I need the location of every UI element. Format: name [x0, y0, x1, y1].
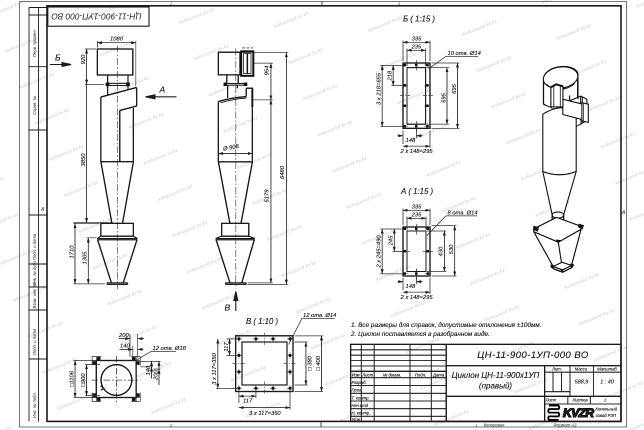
svg-text:В ( 1:10 ): В ( 1:10 )	[246, 317, 278, 326]
svg-text:200: 200	[118, 333, 129, 339]
svg-text:140: 140	[120, 344, 130, 350]
svg-text:Масса: Масса	[575, 367, 588, 372]
svg-text:1. Все размеры для справок, до: 1. Все размеры для справок, допустимые о…	[351, 321, 542, 329]
svg-text:А: А	[40, 207, 45, 213]
svg-text:ЦН-11-900-1УП-000 ВО: ЦН-11-900-1УП-000 ВО	[51, 12, 142, 22]
svg-text:2. Циклон поставляется в разоб: 2. Циклон поставляется в разобранном вид…	[350, 330, 490, 338]
svg-text:Нач.отд: Нач.отд	[352, 403, 369, 408]
svg-text:Подп. и дата: Подп. и дата	[32, 233, 37, 260]
svg-text:8 отв. Ø14: 8 отв. Ø14	[448, 210, 478, 216]
svg-text:200: 200	[154, 370, 160, 381]
svg-text:3 х 117=350: 3 х 117=350	[249, 411, 281, 417]
svg-text:Циклон ЦН-11-900х1УП: Циклон ЦН-11-900х1УП	[452, 371, 540, 380]
svg-text:1: 1	[398, 1, 400, 6]
svg-text:□ 380: □ 380	[308, 355, 314, 371]
svg-text:1710: 1710	[69, 245, 75, 259]
svg-text:Перв. примен.: Перв. примен.	[32, 29, 37, 57]
svg-text:218: 218	[388, 70, 394, 81]
svg-text:588,9: 588,9	[575, 380, 589, 386]
svg-text:Т. контр.: Т. контр.	[352, 395, 370, 400]
svg-text:А ( 1:15 ): А ( 1:15 )	[400, 187, 433, 196]
svg-text:□ 400: □ 400	[316, 355, 322, 371]
svg-text:245: 245	[389, 235, 395, 246]
svg-text:1: 1	[475, 423, 477, 428]
svg-text:6480: 6480	[280, 165, 286, 179]
svg-text:А: А	[159, 85, 166, 95]
svg-text:235: 235	[410, 45, 421, 51]
svg-text:117: 117	[243, 399, 253, 405]
svg-text:Справ. №: Справ. №	[32, 96, 37, 115]
svg-text:1 : 40: 1 : 40	[600, 380, 614, 386]
svg-text:Листов: Листов	[571, 398, 588, 403]
svg-text:Лист: Лист	[361, 373, 373, 378]
svg-text:117: 117	[224, 342, 230, 352]
svg-text:Копельный: Копельный	[596, 407, 618, 412]
svg-text:235: 235	[411, 213, 422, 219]
svg-text:Б ( 1:15 ): Б ( 1:15 )	[403, 15, 435, 24]
svg-text:□900: □900	[81, 373, 87, 387]
svg-text:335: 335	[412, 205, 422, 211]
svg-text:Н. контр.: Н. контр.	[352, 411, 371, 416]
svg-text:148: 148	[406, 138, 416, 144]
svg-text:920: 920	[81, 54, 87, 64]
svg-text:430: 430	[439, 246, 445, 256]
svg-text:5179: 5179	[265, 189, 271, 203]
svg-text:Подп.: Подп.	[415, 373, 426, 378]
svg-text:KVZR: KVZR	[563, 406, 594, 420]
svg-text:Разраб.: Разраб.	[352, 380, 367, 385]
svg-text:Масштаб: Масштаб	[597, 367, 617, 372]
svg-text:Пров.: Пров.	[352, 388, 363, 393]
svg-text:Утв.: Утв.	[352, 417, 362, 422]
svg-text:1080: 1080	[110, 37, 124, 43]
svg-text:Лист: Лист	[545, 398, 557, 403]
svg-text:3 х 218=655: 3 х 218=655	[377, 72, 383, 105]
svg-text:695: 695	[452, 83, 458, 93]
svg-text:10 отв. Ø14: 10 отв. Ø14	[448, 51, 481, 57]
svg-text:Изм: Изм	[352, 373, 360, 378]
svg-text:2 х 148=295: 2 х 148=295	[400, 295, 434, 301]
svg-text:530: 530	[449, 244, 455, 254]
svg-text:В: В	[225, 303, 231, 313]
svg-text:954: 954	[265, 66, 271, 76]
svg-text:Инв. № дубл.: Инв. № дубл.	[32, 260, 37, 286]
svg-text:Взам. инв. №: Взам. инв. №	[32, 282, 37, 308]
svg-text:148: 148	[406, 284, 416, 290]
svg-text:Копировал: Копировал	[484, 423, 505, 428]
svg-text:Инв. № подл.: Инв. № подл.	[32, 392, 37, 418]
svg-text:(правый): (правый)	[479, 382, 512, 391]
svg-text:Дата: Дата	[432, 373, 445, 378]
svg-text:12 отв. Ø18: 12 отв. Ø18	[153, 346, 187, 352]
svg-text:140: 140	[146, 365, 152, 375]
svg-text:3 х 117=350: 3 х 117=350	[212, 352, 218, 384]
svg-text:2 х 245=490: 2 х 245=490	[377, 235, 383, 269]
svg-text:Лит.: Лит.	[551, 367, 562, 372]
svg-text:А: А	[621, 210, 626, 216]
svg-text:Б: Б	[55, 53, 61, 63]
svg-text:595: 595	[441, 92, 447, 102]
svg-text:№ докум.: № докум.	[383, 373, 401, 378]
svg-text:1305: 1305	[83, 251, 89, 265]
svg-text:Подп. и дата: Подп. и дата	[32, 328, 37, 355]
svg-text:3850: 3850	[81, 153, 87, 167]
svg-text:ЦН-11-900-1УП-000 ВО: ЦН-11-900-1УП-000 ВО	[477, 350, 589, 361]
svg-text:335: 335	[412, 37, 422, 43]
svg-text:□1106: □1106	[69, 370, 75, 387]
svg-text:Формат А3: Формат А3	[554, 423, 578, 428]
svg-text:12 отв. Ø14: 12 отв. Ø14	[303, 313, 336, 319]
svg-text:2 х 148=295: 2 х 148=295	[400, 149, 434, 155]
svg-text:1: 1	[604, 398, 606, 403]
svg-text:завод РЗП: завод РЗП	[595, 413, 617, 418]
